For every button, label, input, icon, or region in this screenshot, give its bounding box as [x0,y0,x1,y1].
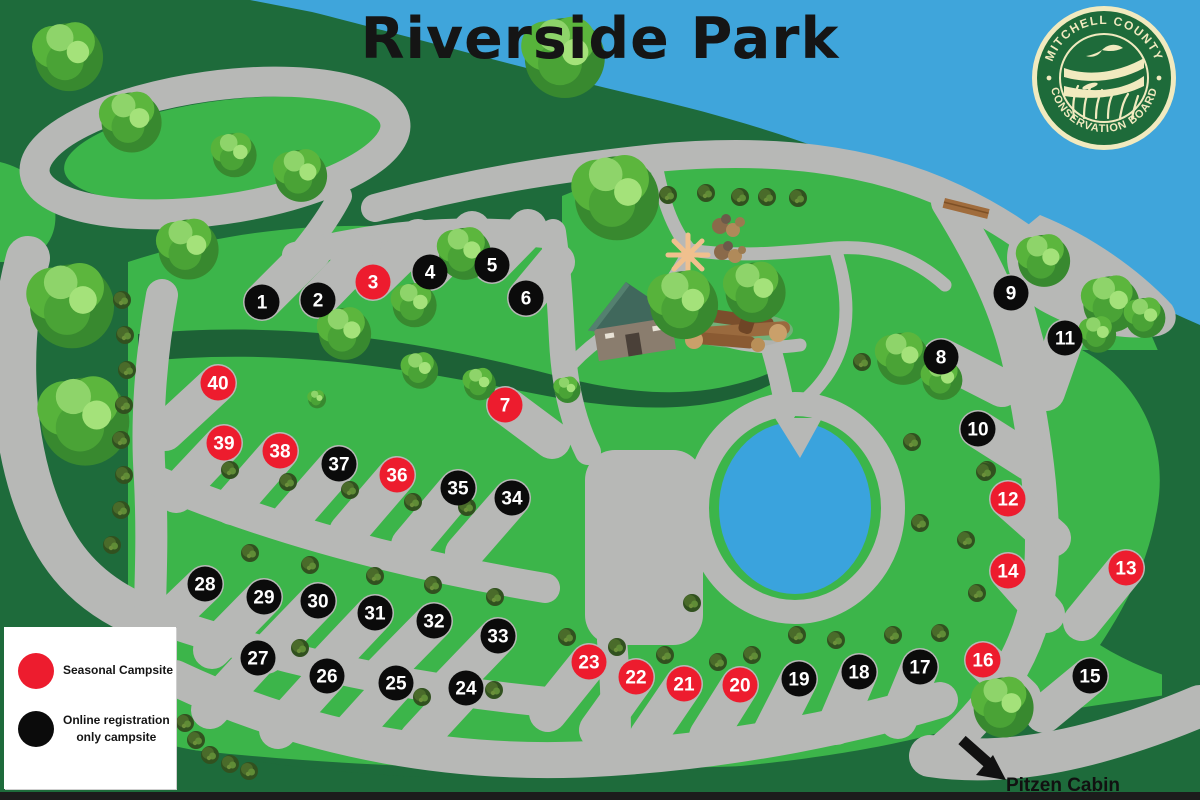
campsite-marker-11[interactable]: 11 [1048,321,1083,356]
shrub-icon [485,681,503,699]
campsite-marker-3[interactable]: 3 [356,265,391,300]
svg-text:8: 8 [936,348,947,369]
campsite-marker-20[interactable]: 20 [723,668,758,703]
svg-text:24: 24 [455,679,477,700]
campsite-marker-16[interactable]: 16 [966,643,1001,678]
shrub-icon [116,326,134,344]
shrub-icon [789,189,807,207]
shrub-icon [176,714,194,732]
svg-text:20: 20 [729,676,750,697]
campsite-marker-18[interactable]: 18 [842,655,877,690]
shrub-icon [112,431,130,449]
svg-text:15: 15 [1079,667,1101,688]
legend-item-online: Online registration only campsite [18,711,176,747]
shrub-icon [291,639,309,657]
legend-label: Online registration only campsite [63,712,170,747]
legend-item-seasonal: Seasonal Campsite [18,653,176,689]
svg-text:1: 1 [257,293,268,314]
svg-text:22: 22 [625,668,646,689]
campsite-marker-25[interactable]: 25 [379,666,414,701]
svg-text:27: 27 [247,649,268,670]
svg-text:34: 34 [501,489,523,510]
online-campsite-swatch [18,711,54,747]
svg-text:6: 6 [521,289,532,310]
campsite-marker-38[interactable]: 38 [263,434,298,469]
svg-text:14: 14 [997,562,1019,583]
map-canvas: 1234567891011121314151617181920212223242… [0,0,1200,800]
svg-text:39: 39 [213,434,234,455]
shrub-icon [697,184,715,202]
shrub-icon [113,291,131,309]
central-plaza [585,450,703,645]
svg-text:21: 21 [673,675,695,696]
campsite-marker-1[interactable]: 1 [245,285,280,320]
cabin-label: Pitzen Cabin [998,775,1128,797]
park-map: 1234567891011121314151617181920212223242… [0,0,1200,800]
svg-text:4: 4 [425,263,436,284]
shrub-icon [187,731,205,749]
campsite-marker-39[interactable]: 39 [207,426,242,461]
logo-dot-right [1157,76,1162,81]
page-title: Riverside Park [0,6,1200,72]
campsite-marker-9[interactable]: 9 [994,276,1029,311]
svg-text:16: 16 [972,651,993,672]
shrub-icon [976,463,994,481]
shrub-icon [301,556,319,574]
shrub-icon [827,631,845,649]
svg-text:3: 3 [368,273,379,294]
seasonal-campsite-swatch [18,653,54,689]
shrub-icon [201,746,219,764]
svg-text:31: 31 [364,604,386,625]
shrub-icon [118,361,136,379]
shrub-icon [788,626,806,644]
logo-mitchell-county-conservation-board: MITCHELL COUNTY CONSERVATION BOARD [1028,2,1180,154]
campsite-marker-6[interactable]: 6 [509,281,544,316]
svg-text:12: 12 [997,490,1018,511]
shrub-icon [743,646,761,664]
svg-text:29: 29 [253,588,274,609]
svg-text:32: 32 [423,612,444,633]
campsite-marker-21[interactable]: 21 [667,667,702,702]
legend-label: Seasonal Campsite [63,662,173,679]
campsite-marker-22[interactable]: 22 [619,660,654,695]
shrub-icon [683,594,701,612]
shrub-icon [884,626,902,644]
shrub-icon [221,461,239,479]
shrub-icon [103,536,121,554]
svg-text:17: 17 [909,658,930,679]
campsite-marker-35[interactable]: 35 [441,471,476,506]
shrub-icon [903,433,921,451]
svg-text:35: 35 [447,479,469,500]
shrub-icon [659,186,677,204]
shrub-icon [115,466,133,484]
svg-text:23: 23 [578,653,599,674]
shrub-icon [608,638,626,656]
campsite-marker-2[interactable]: 2 [301,283,336,318]
campsite-marker-19[interactable]: 19 [782,662,817,697]
shrub-icon [404,493,422,511]
campsite-marker-4[interactable]: 4 [413,255,448,290]
svg-text:5: 5 [487,256,498,277]
svg-text:40: 40 [207,374,228,395]
shrub-icon [968,584,986,602]
campsite-marker-8[interactable]: 8 [924,340,959,375]
shrub-icon [221,755,239,773]
campsite-marker-10[interactable]: 10 [961,412,996,447]
shrub-icon [853,353,871,371]
shrub-icon [656,646,674,664]
campsite-marker-12[interactable]: 12 [991,482,1026,517]
shrub-icon [115,396,133,414]
shrub-icon [957,531,975,549]
shrub-icon [558,628,576,646]
inner-west-road [149,295,163,618]
campsite-marker-36[interactable]: 36 [380,458,415,493]
svg-text:10: 10 [967,420,988,441]
shrub-icon [709,653,727,671]
svg-text:38: 38 [269,442,290,463]
campsite-marker-28[interactable]: 28 [188,567,223,602]
svg-text:19: 19 [788,670,809,691]
shrub-icon [341,481,359,499]
campsite-marker-29[interactable]: 29 [247,580,282,615]
svg-text:9: 9 [1006,284,1017,305]
campsite-marker-33[interactable]: 33 [481,619,516,654]
logo-dot-left [1047,76,1052,81]
svg-text:26: 26 [316,667,337,688]
shrub-icon [486,588,504,606]
campsite-marker-24[interactable]: 24 [449,671,484,706]
legend: Seasonal Campsite Online registration on… [4,627,176,789]
svg-text:33: 33 [487,627,508,648]
svg-text:36: 36 [386,466,407,487]
svg-text:28: 28 [194,575,215,596]
campsite-marker-40[interactable]: 40 [201,366,236,401]
campsite-marker-5[interactable]: 5 [475,248,510,283]
shrub-icon [424,576,442,594]
campsite-marker-17[interactable]: 17 [903,650,938,685]
shrub-icon [413,688,431,706]
playground [668,235,708,275]
svg-text:18: 18 [848,663,869,684]
campsite-marker-34[interactable]: 34 [495,481,530,516]
shrub-icon [931,624,949,642]
shrub-icon [911,514,929,532]
svg-text:11: 11 [1055,329,1076,350]
campsite-marker-30[interactable]: 30 [301,584,336,619]
svg-text:2: 2 [313,291,324,312]
campsite-marker-14[interactable]: 14 [991,554,1026,589]
shrub-icon [279,473,297,491]
svg-text:25: 25 [385,674,407,695]
campsite-marker-32[interactable]: 32 [417,604,452,639]
campsite-marker-31[interactable]: 31 [358,596,393,631]
svg-text:13: 13 [1115,559,1136,580]
campsite-marker-7[interactable]: 7 [488,388,523,423]
shrub-icon [240,762,258,780]
shrub-icon [758,188,776,206]
svg-text:30: 30 [307,592,328,613]
svg-text:37: 37 [328,455,349,476]
campsite-marker-23[interactable]: 23 [572,645,607,680]
shrub-icon [241,544,259,562]
svg-text:7: 7 [500,396,511,417]
campsite-marker-26[interactable]: 26 [310,659,345,694]
campsite-marker-15[interactable]: 15 [1073,659,1108,694]
campsite-marker-27[interactable]: 27 [241,641,276,676]
shrub-icon [112,501,130,519]
campsite-marker-37[interactable]: 37 [322,447,357,482]
campsite-marker-13[interactable]: 13 [1109,551,1144,586]
shrub-icon [731,188,749,206]
shrub-icon [366,567,384,585]
